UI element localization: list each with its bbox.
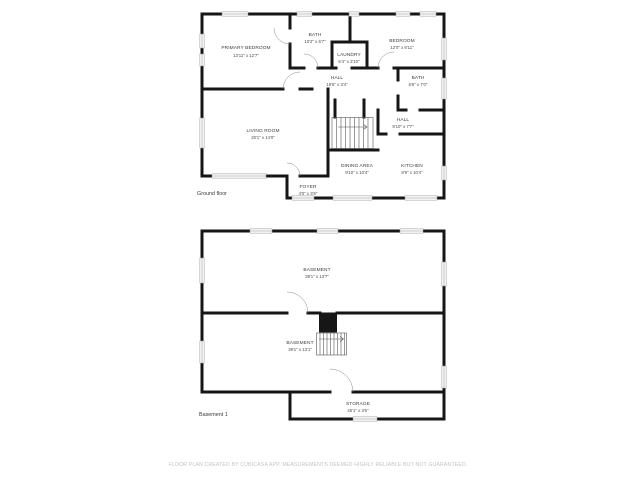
room-label-bath-right: BATH: [412, 75, 425, 81]
room-dims-storage: 25'1" x 3'6": [347, 408, 369, 413]
ground-floor-plan: PRIMARY BEDROOM 13'11" x 12'7" BATH 10'2…: [197, 12, 446, 200]
room-dims-primary-bedroom: 13'11" x 12'7": [233, 53, 259, 58]
door-arc: [330, 369, 353, 392]
room-dims-living-room: 20'1" x 14'0": [251, 135, 275, 140]
window: [200, 118, 204, 148]
window: [442, 78, 446, 99]
room-label-hall-right: HALL: [397, 117, 410, 123]
window: [292, 196, 314, 200]
floor-plan-disclaimer: FLOOR PLAN CREATED BY CUBICASA APP. MEAS…: [169, 462, 468, 468]
window: [442, 366, 446, 388]
window: [405, 196, 437, 200]
room-dims-bath-right: 6'6" x 7'0": [409, 82, 428, 87]
room-label-primary-bedroom: PRIMARY BEDROOM: [221, 45, 270, 51]
window: [200, 54, 204, 66]
room-dims-laundry: 5'4" x 3'10": [338, 59, 360, 64]
room-label-storage: STORAGE: [346, 401, 370, 407]
room-dims-kitchen: 8'9" x 10'4": [401, 170, 423, 175]
door-arc: [304, 54, 318, 68]
window: [442, 262, 446, 286]
floor-plan-page: PRIMARY BEDROOM 13'11" x 12'7" BATH 10'2…: [0, 0, 640, 480]
room-dims-dining-area: 9'10" x 10'4": [345, 170, 369, 175]
room-label-basement-main: BASEMENT: [303, 267, 330, 273]
room-dims-bedroom: 12'0" x 8'11": [390, 45, 414, 50]
window: [212, 174, 266, 178]
room-dims-bath-top: 10'2" x 6'7": [304, 39, 326, 44]
window: [317, 229, 338, 233]
room-dims-foyer: 4'0" x 3'6": [299, 191, 318, 196]
room-dims-hall-right: 9'10" x 7'7": [392, 124, 414, 129]
stairs-icon: [332, 118, 373, 149]
window: [400, 229, 423, 233]
room-label-living-room: LIVING ROOM: [246, 128, 279, 134]
door-arc: [287, 292, 308, 313]
window: [200, 341, 204, 363]
window: [442, 166, 446, 180]
ground-room-labels: PRIMARY BEDROOM 13'11" x 12'7" BATH 10'2…: [221, 32, 428, 196]
room-label-bath-top: BATH: [309, 32, 322, 38]
room-label-foyer: FOYER: [299, 184, 316, 190]
room-dims-hall-top: 19'6" x 3'4": [326, 82, 348, 87]
basement-floor-label: Basement 1: [199, 412, 228, 418]
room-label-bedroom: BEDROOM: [389, 38, 415, 44]
window: [442, 38, 446, 60]
chimney-icon: [319, 313, 337, 333]
window: [250, 229, 272, 233]
door-arc: [287, 163, 300, 176]
window: [349, 12, 359, 16]
room-label-basement-lower: BASEMENT: [286, 340, 313, 346]
room-label-hall-top: HALL: [331, 75, 344, 81]
room-dims-basement-lower: 39'1" x 13'1": [288, 347, 312, 352]
door-arc: [283, 72, 300, 89]
room-label-dining-area: DINING AREA: [341, 163, 374, 169]
window: [200, 258, 204, 283]
door-arc: [274, 28, 290, 44]
room-dims-basement-main: 39'1" x 13'7": [305, 274, 329, 279]
window: [200, 34, 204, 48]
window: [353, 417, 377, 421]
stairs-icon: [317, 333, 347, 355]
door-arc: [378, 52, 394, 68]
floor-plan-canvas: PRIMARY BEDROOM 13'11" x 12'7" BATH 10'2…: [0, 0, 640, 480]
window: [297, 12, 312, 16]
room-label-kitchen: KITCHEN: [401, 163, 423, 169]
ground-floor-label: Ground floor: [197, 191, 227, 197]
room-label-laundry: LAUNDRY: [337, 52, 361, 58]
basement-floor-plan: BASEMENT 39'1" x 13'7" BASEMENT 39'1" x …: [199, 229, 446, 421]
window: [222, 12, 248, 16]
window: [420, 12, 436, 16]
window: [396, 12, 410, 16]
window: [333, 196, 372, 200]
